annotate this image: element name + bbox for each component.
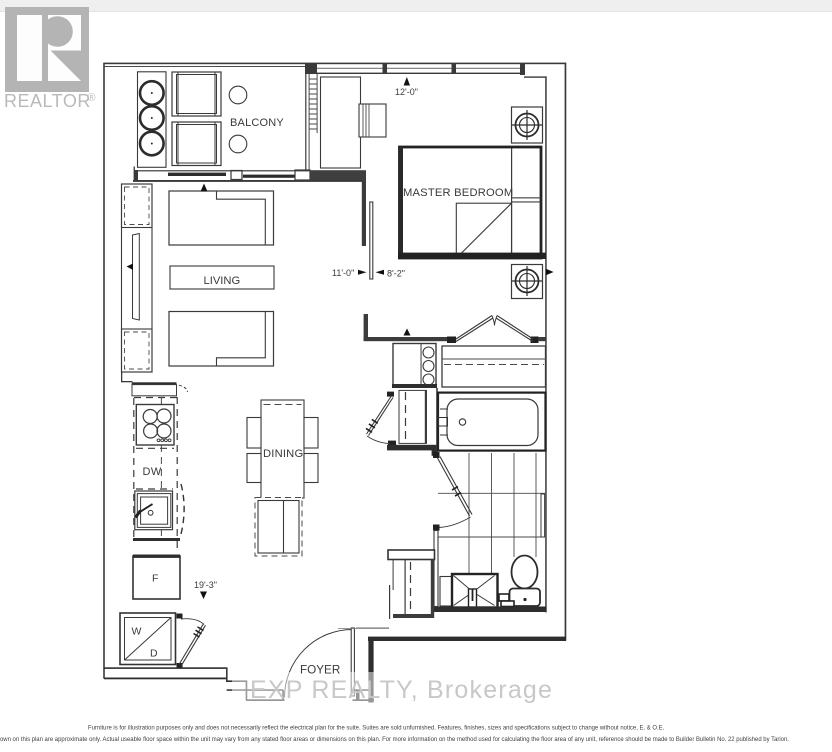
svg-text:LIVING: LIVING [204,275,241,287]
svg-text:Furniture is for illustration: Furniture is for illustration purposes o… [88,726,665,732]
svg-text:F: F [152,573,158,585]
svg-text:own on this plan are approxima: own on this plan are approximate only. A… [0,737,789,743]
svg-text:MASTER BEDROOM: MASTER BEDROOM [403,187,513,199]
svg-text:D: D [150,648,158,660]
svg-text:®: ® [88,92,96,104]
svg-text:19'-3": 19'-3" [194,580,217,590]
svg-text:REALTOR: REALTOR [4,91,91,111]
svg-text:FOYER: FOYER [300,664,340,677]
svg-text:DINING: DINING [263,448,303,460]
svg-text:W: W [132,626,142,638]
svg-text:8'-2": 8'-2" [387,269,405,279]
svg-text:EXP REALTY, Brokerage: EXP REALTY, Brokerage [250,676,553,704]
svg-text:DW: DW [143,466,162,478]
svg-text:BALCONY: BALCONY [230,117,284,129]
svg-text:11'-0": 11'-0" [332,268,354,278]
svg-text:12'-0": 12'-0" [395,87,418,97]
